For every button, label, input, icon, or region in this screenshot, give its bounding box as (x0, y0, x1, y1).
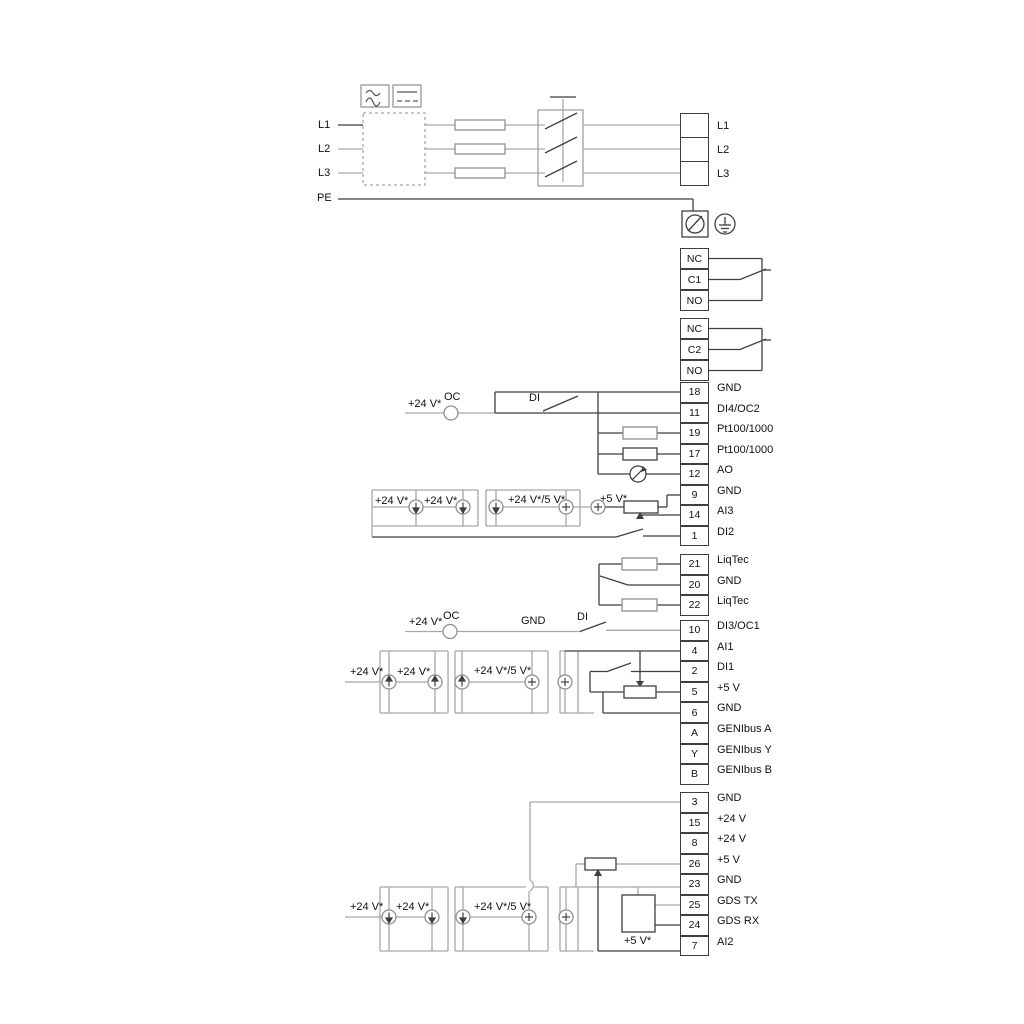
label-plus24v: +24 V* (396, 901, 429, 913)
fuse-l3 (455, 168, 505, 178)
switch-blade-l2 (545, 137, 577, 153)
terminal-label-y: GENIbus Y (717, 744, 772, 756)
terminal-label-19: Pt100/1000 (717, 423, 773, 435)
terminal-number: 15 (689, 817, 701, 829)
terminal-label-1: DI2 (717, 526, 734, 538)
earth-icon (715, 214, 735, 234)
fuse-l1 (455, 120, 505, 130)
terminal-number: B (691, 768, 698, 780)
terminal-cell-15: 15 (680, 813, 709, 834)
terminal-cell-22: 22 (680, 595, 709, 616)
terminal-number: 19 (689, 427, 701, 439)
terminal-cell-25: 25 (680, 895, 709, 916)
switch-blade-l1 (545, 113, 577, 129)
terminal-label-14: AI3 (717, 505, 734, 517)
oc1-circle-icon (444, 406, 458, 420)
switch-blade-l3 (545, 161, 577, 177)
label-plus24v: +24 V* (350, 666, 383, 678)
terminal-cell-26: 26 (680, 854, 709, 875)
terminal-cell-23: 23 (680, 874, 709, 895)
terminal-number: 8 (692, 837, 698, 849)
terminal-label-a: GENIbus A (717, 723, 771, 735)
terminal-cell-2: 2 (680, 661, 709, 682)
terminal-cell-3: 3 (680, 792, 709, 813)
label-plus24v-5v: +24 V*/5 V* (474, 665, 531, 677)
fuses (455, 120, 505, 178)
terminal-number: 6 (692, 707, 698, 719)
label-plus24v: +24 V* (424, 495, 457, 507)
label-di: DI (577, 611, 588, 623)
terminal-label-11: DI4/OC2 (717, 403, 760, 415)
terminal-cell-a: A (680, 723, 709, 744)
relay2-nc: NC (687, 323, 702, 335)
liqtec-resistor-1 (622, 558, 657, 570)
terminal-number: 22 (689, 599, 701, 611)
label-di: DI (529, 392, 540, 404)
power-out-label-l3: L3 (717, 161, 729, 186)
di2-switch-blade (616, 529, 643, 537)
label-plus24v: +24 V* (408, 398, 441, 410)
terminal-label-b: GENIbus B (717, 764, 772, 776)
terminal-cell-20: 20 (680, 575, 709, 596)
label-oc: OC (444, 391, 461, 403)
gds-sensor-box (622, 895, 655, 932)
relay2-no: NO (687, 365, 703, 377)
relay2-nc-cell: NC (680, 318, 709, 339)
rcd-dashed-box (363, 113, 425, 185)
terminal-label-22: LiqTec (717, 595, 749, 607)
terminal-cell-4: 4 (680, 641, 709, 662)
di1-switch-blade (607, 663, 631, 672)
terminal-number: 4 (692, 645, 698, 657)
terminal-number: 12 (689, 468, 701, 480)
relay1-nc-cell: NC (680, 248, 709, 269)
mains-label-l1: L1 (318, 119, 330, 131)
oc2-circle-icon (443, 625, 457, 639)
row3-source-symbols (386, 913, 570, 924)
label-plus24v: +24 V* (350, 901, 383, 913)
terminal-cell-8: 8 (680, 833, 709, 854)
terminal-label-4: AI1 (717, 641, 734, 653)
row2-dark-wires (565, 651, 680, 713)
relay2-contact (708, 329, 771, 371)
terminal-cell-11: 11 (680, 403, 709, 424)
relay2-c2-cell: C2 (680, 339, 709, 360)
liqtec-resistor-2 (622, 599, 657, 611)
ai2-potentiometer (585, 858, 616, 870)
terminal-cell-y: Y (680, 744, 709, 765)
terminal-cell-21: 21 (680, 554, 709, 575)
label-plus24v-5v: +24 V*/5 V* (474, 901, 531, 913)
terminal-cell-19: 19 (680, 423, 709, 444)
terminal-cell-5: 5 (680, 682, 709, 703)
mains-label-l3: L3 (318, 167, 330, 179)
power-out-label-l1: L1 (717, 113, 729, 138)
relay2-no-cell: NO (680, 360, 709, 381)
relay1-contact (708, 259, 771, 301)
terminal-label-24: GDS RX (717, 915, 759, 927)
terminal-number: 23 (689, 878, 701, 890)
mains-gray-wires (338, 99, 680, 185)
relay2-c2: C2 (688, 344, 701, 356)
mains-dark-wires (338, 97, 693, 211)
terminal-cell-7: 7 (680, 936, 709, 957)
terminal-number: 17 (689, 448, 701, 460)
terminal-label-18: GND (717, 382, 741, 394)
relay1-no-cell: NO (680, 290, 709, 311)
label-oc: OC (443, 610, 460, 622)
terminal-number: 21 (689, 558, 701, 570)
terminal-label-12: AO (717, 464, 733, 476)
terminal-label-8: +24 V (717, 833, 746, 845)
terminal-label-10: DI3/OC1 (717, 620, 760, 632)
relay1-nc: NC (687, 253, 702, 265)
power-terminal-l3 (680, 161, 709, 186)
di4-switch-blade (543, 396, 578, 411)
wire-hop (530, 880, 534, 891)
terminal-label-7: AI2 (717, 936, 734, 948)
terminal-number: A (691, 727, 698, 739)
terminal-label-2: DI1 (717, 661, 734, 673)
terminal-number: 11 (689, 407, 700, 419)
pt100-resistor-2 (623, 448, 657, 460)
ai1-potentiometer (624, 686, 656, 698)
terminal-label-5: +5 V (717, 682, 740, 694)
terminal-number: 18 (689, 386, 701, 398)
terminal-label-20: GND (717, 575, 741, 587)
terminal-cell-18: 18 (680, 382, 709, 403)
terminal-label-9: GND (717, 485, 741, 497)
terminal-cell-24: 24 (680, 915, 709, 936)
terminal-cell-12: 12 (680, 464, 709, 485)
wiring-diagram-page: L1 L2 L3 PE L1 L2 L3 NC C1 NO NC C2 NO 1… (0, 0, 1024, 1024)
terminal-cell-17: 17 (680, 444, 709, 465)
relay1-c1: C1 (688, 274, 701, 286)
terminal-label-17: Pt100/1000 (717, 444, 773, 456)
power-out-label-l2: L2 (717, 137, 729, 162)
terminal-cell-6: 6 (680, 702, 709, 723)
rcd-ac-icon (361, 85, 389, 107)
terminal-number: 1 (692, 530, 698, 542)
terminal-label-25: GDS TX (717, 895, 758, 907)
di3-switch-blade (580, 622, 606, 632)
rcd-type-icons (361, 85, 421, 107)
terminal-label-21: LiqTec (717, 554, 749, 566)
power-terminal-l2 (680, 137, 709, 162)
mains-label-l2: L2 (318, 143, 330, 155)
terminal-label-3: GND (717, 792, 741, 804)
label-plus24v: +24 V* (409, 616, 442, 628)
terminal-number: 5 (692, 686, 698, 698)
power-terminal-l1 (680, 113, 709, 138)
label-plus24v-5v: +24 V*/5 V* (508, 494, 565, 506)
label-plus24v: +24 V* (397, 666, 430, 678)
label-plus5v: +5 V* (600, 493, 627, 505)
pt100-resistor-1 (623, 427, 657, 439)
wiring-diagram-svg (0, 0, 1024, 1024)
terminal-number: 9 (692, 489, 698, 501)
terminal-label-6: GND (717, 702, 741, 714)
mains-label-pe: PE (317, 192, 332, 204)
terminal-label-23: GND (717, 874, 741, 886)
terminal-cell-10: 10 (680, 620, 709, 641)
terminal-number: 20 (689, 579, 701, 591)
t1-dark-wires (372, 392, 680, 537)
rcd-dc-icon (393, 85, 421, 107)
ao-meter-icon (630, 466, 647, 482)
terminal-number: 3 (692, 796, 698, 808)
terminal-label-15: +24 V (717, 813, 746, 825)
terminal-number: 24 (689, 919, 701, 931)
terminal-cell-b: B (680, 764, 709, 785)
label-gnd: GND (521, 615, 545, 627)
terminal-number: 2 (692, 665, 698, 677)
screw-terminal-icon (682, 211, 708, 237)
terminal-cell-1: 1 (680, 526, 709, 547)
label-plus24v: +24 V* (375, 495, 408, 507)
terminal-number: 25 (689, 899, 701, 911)
relay1-c1-cell: C1 (680, 269, 709, 290)
terminal-cell-9: 9 (680, 485, 709, 506)
terminal-number: Y (691, 748, 698, 760)
terminal-cell-14: 14 (680, 505, 709, 526)
terminal-label-26: +5 V (717, 854, 740, 866)
terminal-number: 14 (689, 509, 701, 521)
terminal-number: 7 (692, 940, 698, 952)
label-plus5v: +5 V* (624, 935, 651, 947)
terminal-number: 26 (689, 858, 701, 870)
relay1-no: NO (687, 295, 703, 307)
fuse-l2 (455, 144, 505, 154)
ai3-potentiometer (624, 501, 658, 513)
terminal-number: 10 (689, 624, 701, 636)
